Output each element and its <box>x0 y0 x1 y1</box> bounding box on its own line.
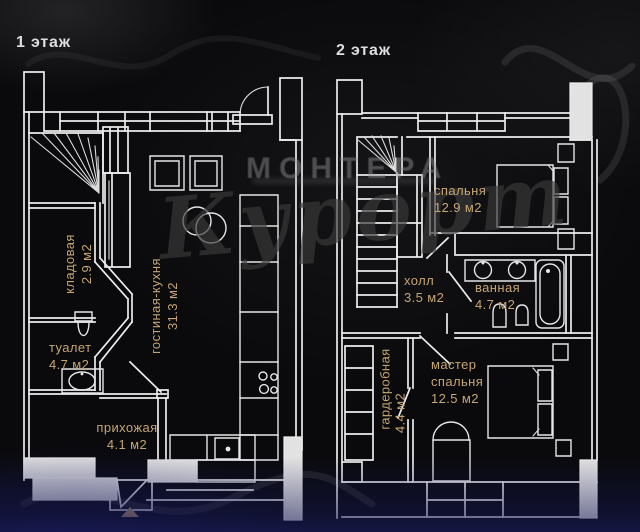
room-area: 31.3 м2 <box>164 258 181 354</box>
room-label-holl: холл 3.5 м2 <box>404 272 444 306</box>
room-name: спальня <box>434 183 486 198</box>
floor2-title: 2 этаж <box>336 42 391 60</box>
room-area: 4.7 м2 <box>49 356 91 373</box>
room-area: 12.9 м2 <box>434 199 486 216</box>
room-name: туалет <box>49 340 91 355</box>
room-name: мастер спальня <box>431 356 493 390</box>
room-label-gostinaya-kuhnya: гостиная-кухня 31.3 м2 <box>147 258 181 354</box>
floor1-title: 1 этаж <box>16 34 71 52</box>
room-label-vannaya: ванная 4.7 м2 <box>475 279 520 313</box>
room-area: 4.1 м2 <box>94 436 160 453</box>
room-label-garderobnaya-area: 4.4 м2 <box>392 393 409 433</box>
room-label-kladovaya: кладовая 2.9 м2 <box>61 234 95 294</box>
room-area: 4.7 м2 <box>475 296 520 313</box>
floorplan-photo: МОНТЕРА Курорт 1 этаж 2 этаж кладовая 2.… <box>0 0 640 532</box>
room-name: гардеробная <box>378 348 393 429</box>
room-name: холл <box>404 273 434 288</box>
room-area: 12.5 м2 <box>431 390 493 407</box>
room-label-prihozhaya: прихожая 4.1 м2 <box>94 419 160 453</box>
room-name: прихожая <box>96 420 157 435</box>
room-name: гостиная-кухня <box>148 258 163 354</box>
room-area: 2.9 м2 <box>78 234 95 294</box>
room-label-spalnya: спальня 12.9 м2 <box>434 182 486 216</box>
room-area: 3.5 м2 <box>404 289 444 306</box>
room-area: 4.4 м2 <box>393 393 408 433</box>
room-label-tualet: туалет 4.7 м2 <box>49 339 91 373</box>
room-name: ванная <box>475 280 520 295</box>
room-name: кладовая <box>62 234 77 294</box>
room-label-master-spalnya: мастер спальня 12.5 м2 <box>431 356 493 407</box>
